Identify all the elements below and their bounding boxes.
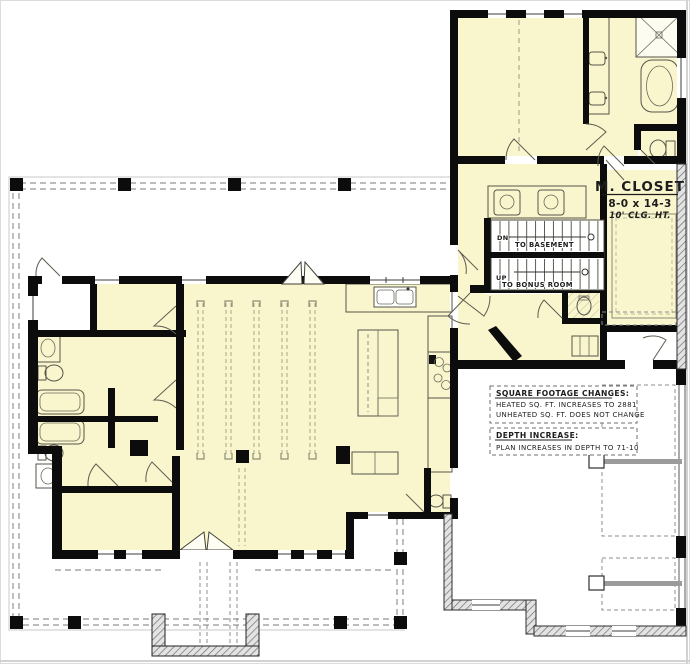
depth-note-line1: PLAN INCREASES IN DEPTH TO 71-10 (496, 444, 639, 452)
porch-column (118, 178, 131, 191)
garage-opener-motor (589, 454, 604, 468)
master-bedroom-floor-lower (457, 130, 583, 158)
garage-opener-track-2 (589, 576, 682, 590)
stair-dn-label: DN (497, 234, 509, 242)
plan-notes: SQUARE FOOTAGE CHANGES: HEATED SQ. FT. I… (490, 386, 645, 455)
master-shower (636, 13, 682, 57)
stair-dn-dest-label: TO BASEMENT (515, 241, 574, 249)
laundry-hall-floor (457, 164, 600, 222)
garage-opener-track-1 (589, 454, 682, 468)
porch-column (10, 616, 23, 629)
sqft-note-line2: UNHEATED SQ. FT. DOES NOT CHANGE (496, 411, 645, 419)
porch-column (394, 552, 407, 565)
sqft-note-title: SQUARE FOOTAGE CHANGES: (496, 389, 629, 398)
porch-storage-floor (38, 284, 96, 330)
porch-column (394, 616, 407, 629)
floor-plan-page: DN TO BASEMENT UP TO BONUS ROOM (0, 0, 690, 664)
stairs: DN TO BASEMENT UP TO BONUS ROOM (490, 220, 604, 290)
porch-column (10, 178, 23, 191)
porch-column (228, 178, 241, 191)
floor-plan-canvas: DN TO BASEMENT UP TO BONUS ROOM (0, 0, 690, 664)
hall-strip-floor (458, 222, 484, 294)
porch-french-door-leaf (282, 262, 302, 284)
stair-up-dest-label: TO BONUS ROOM (502, 281, 573, 289)
master-closet-dims: 8-0 x 14-3 (608, 198, 671, 210)
porch-french-door-leaf (304, 262, 324, 284)
front-steps (152, 614, 259, 656)
porch-column (68, 616, 81, 629)
porch-column (338, 178, 351, 191)
depth-note-title: DEPTH INCREASE: (496, 431, 579, 440)
garage-opener-motor (589, 576, 604, 590)
powder-tile-floor (563, 291, 599, 321)
porch-column (334, 616, 347, 629)
master-closet-label: M. CLOSET (595, 179, 685, 195)
master-closet-ceiling: 10' CLG. HT. (609, 211, 671, 221)
sqft-note-line1: HEATED SQ. FT. INCREASES TO 2881 (496, 401, 637, 409)
